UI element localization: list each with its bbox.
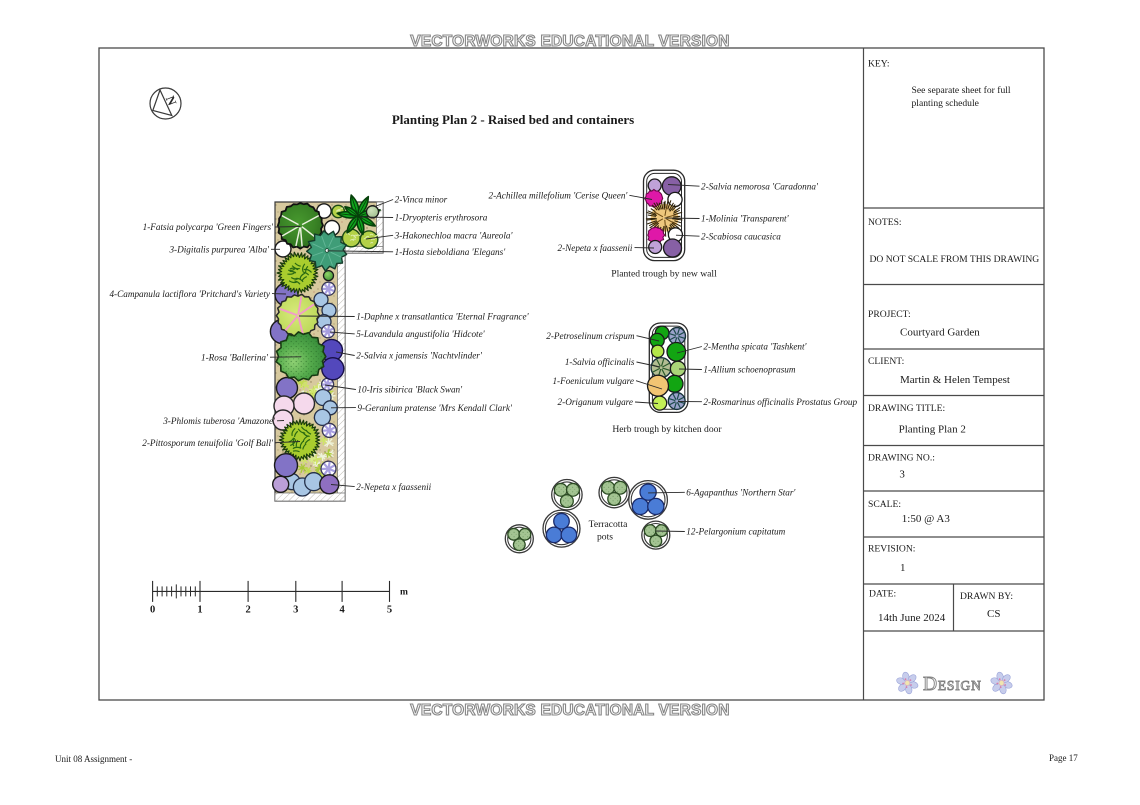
svg-text:2-Nepeta x faassenii: 2-Nepeta x faassenii — [557, 243, 632, 253]
svg-text:REVISION:: REVISION: — [868, 544, 915, 555]
svg-text:CS: CS — [987, 608, 1000, 620]
svg-text:3: 3 — [293, 604, 298, 615]
svg-text:3-Digitalis purpurea 'Alba': 3-Digitalis purpurea 'Alba' — [168, 245, 270, 255]
svg-text:N: N — [163, 94, 179, 108]
svg-text:14th June 2024: 14th June 2024 — [878, 612, 946, 624]
svg-text:1-Dryopteris erythrosora: 1-Dryopteris erythrosora — [395, 213, 488, 223]
svg-text:2-Salvia nemorosa 'Caradonna': 2-Salvia nemorosa 'Caradonna' — [701, 181, 819, 191]
svg-text:1-Daphne x transatlantica 'Ete: 1-Daphne x transatlantica 'Eternal Fragr… — [356, 312, 529, 322]
svg-text:3-Hakonechloa macra 'Aureola': 3-Hakonechloa macra 'Aureola' — [394, 231, 514, 241]
svg-text:5: 5 — [387, 604, 392, 615]
svg-text:1-Fatsia polycarpa 'Green Fing: 1-Fatsia polycarpa 'Green Fingers' — [143, 222, 274, 232]
svg-text:1-Foeniculum vulgare: 1-Foeniculum vulgare — [552, 376, 634, 386]
svg-text:1-Allium schoenoprasum: 1-Allium schoenoprasum — [703, 365, 795, 375]
svg-text:DRAWING NO.:: DRAWING NO.: — [868, 453, 935, 464]
svg-text:2-Salvia x jamensis 'Nachtvlin: 2-Salvia x jamensis 'Nachtvlinder' — [356, 351, 483, 361]
svg-text:pots: pots — [597, 532, 613, 543]
svg-text:KEY:: KEY: — [868, 59, 890, 70]
svg-text:2-Mentha spicata 'Tashkent': 2-Mentha spicata 'Tashkent' — [703, 342, 807, 352]
svg-text:Herb trough by kitchen door: Herb trough by kitchen door — [612, 424, 722, 435]
svg-text:1-Salvia officinalis: 1-Salvia officinalis — [565, 357, 635, 367]
svg-text:planting schedule: planting schedule — [912, 98, 979, 109]
svg-text:DRAWN BY:: DRAWN BY: — [960, 591, 1013, 602]
svg-text:DO NOT SCALE FROM THIS DRAWING: DO NOT SCALE FROM THIS DRAWING — [870, 254, 1040, 265]
svg-text:1:50 @ A3: 1:50 @ A3 — [902, 513, 951, 525]
svg-text:9-Geranium pratense 'Mrs Kenda: 9-Geranium pratense 'Mrs Kendall Clark' — [357, 403, 513, 413]
svg-text:See separate sheet for full: See separate sheet for full — [912, 85, 1011, 96]
svg-text:1-Hosta sieboldiana 'Elegans': 1-Hosta sieboldiana 'Elegans' — [395, 247, 507, 257]
svg-text:5-Lavandula angustifolia 'Hidc: 5-Lavandula angustifolia 'Hidcote' — [356, 329, 485, 339]
svg-text:1-Rosa 'Ballerina': 1-Rosa 'Ballerina' — [201, 352, 269, 362]
svg-text:DRAWING TITLE:: DRAWING TITLE: — [868, 403, 945, 414]
svg-text:2-Origanum vulgare: 2-Origanum vulgare — [558, 397, 633, 407]
svg-text:2-Achillea millefolium 'Cerise: 2-Achillea millefolium 'Cerise Queen' — [488, 191, 628, 201]
svg-text:3-Phlomis tuberosa 'Amazone': 3-Phlomis tuberosa 'Amazone' — [162, 416, 276, 426]
svg-text:2-Petroselinum crispum: 2-Petroselinum crispum — [546, 331, 635, 341]
svg-text:2: 2 — [245, 604, 250, 615]
svg-text:1-Molinia 'Transparent': 1-Molinia 'Transparent' — [701, 214, 790, 224]
svg-text:2-Rosmarinus officinalis Prost: 2-Rosmarinus officinalis Prostatus Group — [703, 397, 857, 407]
svg-text:1: 1 — [197, 604, 202, 615]
svg-text:Planted trough by new wall: Planted trough by new wall — [611, 269, 717, 280]
svg-text:2-Pittosporum tenuifolia 'Golf: 2-Pittosporum tenuifolia 'Golf Ball' — [142, 438, 274, 448]
svg-text:1: 1 — [900, 562, 906, 574]
svg-text:0: 0 — [150, 604, 155, 615]
svg-text:Planting Plan 2: Planting Plan 2 — [899, 424, 966, 436]
svg-text:2-Nepeta x faassenii: 2-Nepeta x faassenii — [356, 482, 431, 492]
svg-text:DATE:: DATE: — [869, 589, 896, 600]
svg-text:Terracotta: Terracotta — [589, 519, 628, 530]
svg-text:12-Pelargonium capitatum: 12-Pelargonium capitatum — [686, 527, 785, 537]
svg-text:Planting Plan 2 - Raised bed a: Planting Plan 2 - Raised bed and contain… — [392, 112, 634, 127]
svg-text:2-Vinca minor: 2-Vinca minor — [395, 195, 448, 205]
svg-text:Martin & Helen Tempest: Martin & Helen Tempest — [900, 374, 1010, 386]
svg-text:4: 4 — [339, 604, 345, 615]
svg-text:m: m — [400, 587, 408, 597]
svg-text:6-Agapanthus 'Northern Star': 6-Agapanthus 'Northern Star' — [686, 488, 796, 498]
svg-text:DESIGN: DESIGN — [923, 674, 982, 695]
svg-text:PROJECT:: PROJECT: — [868, 309, 911, 320]
svg-text:SCALE:: SCALE: — [868, 499, 901, 510]
svg-text:NOTES:: NOTES: — [868, 217, 902, 228]
svg-text:3: 3 — [899, 469, 905, 481]
svg-text:10-Iris sibirica 'Black Swan': 10-Iris sibirica 'Black Swan' — [357, 385, 463, 395]
svg-text:CLIENT:: CLIENT: — [868, 356, 904, 367]
svg-text:2-Scabiosa caucasica: 2-Scabiosa caucasica — [701, 231, 781, 241]
svg-text:Courtyard Garden: Courtyard Garden — [900, 327, 980, 339]
svg-text:4-Campanula lactiflora 'Pritch: 4-Campanula lactiflora 'Pritchard's Vari… — [109, 289, 270, 299]
